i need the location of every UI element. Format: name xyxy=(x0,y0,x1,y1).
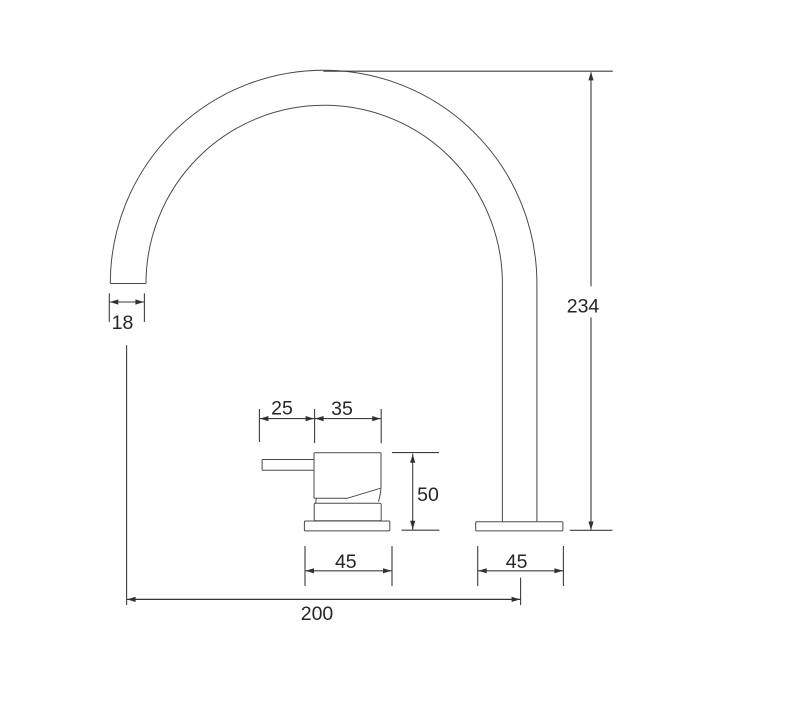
svg-text:45: 45 xyxy=(506,551,528,573)
svg-text:200: 200 xyxy=(301,603,334,625)
svg-text:50: 50 xyxy=(417,484,439,506)
svg-text:45: 45 xyxy=(335,551,357,573)
svg-text:25: 25 xyxy=(271,397,293,419)
svg-text:18: 18 xyxy=(112,312,134,334)
svg-text:35: 35 xyxy=(331,398,353,420)
svg-text:234: 234 xyxy=(567,295,600,317)
